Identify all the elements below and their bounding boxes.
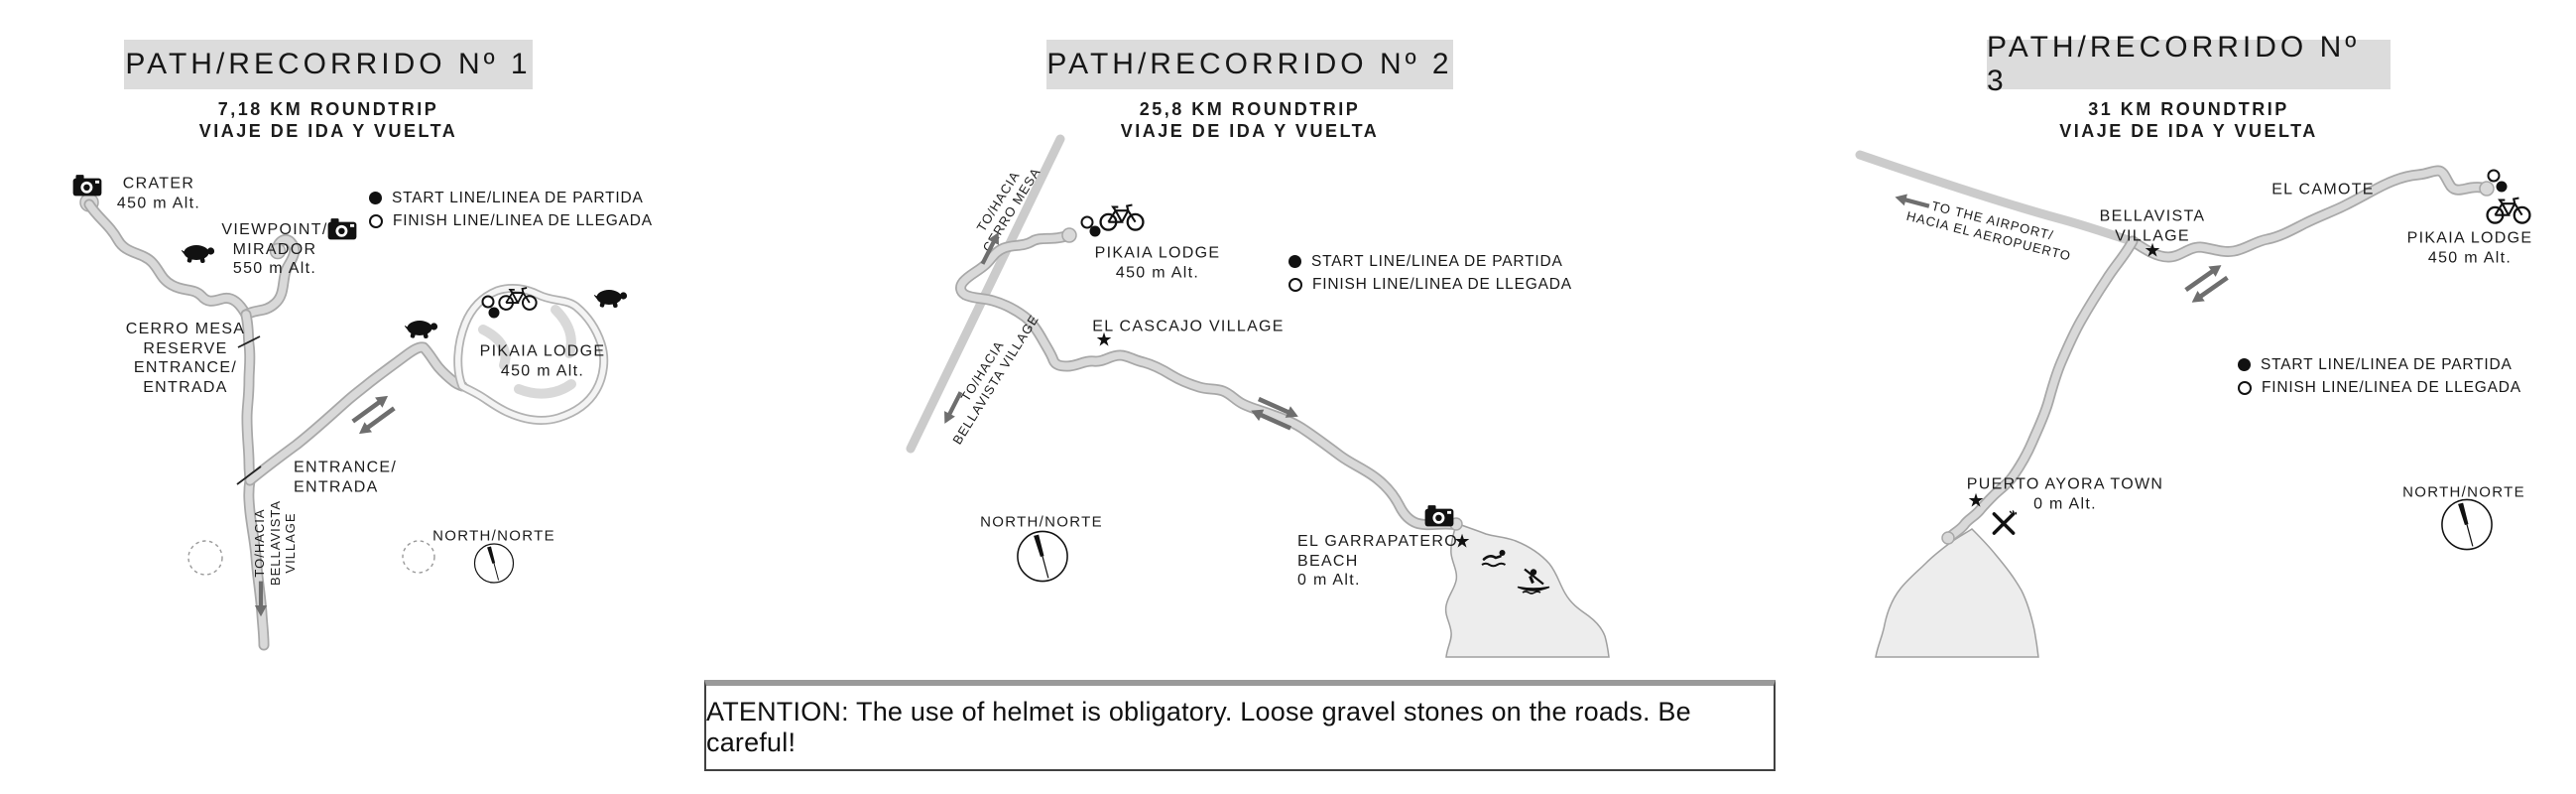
legend-start-label: START LINE/LINEA DE PARTIDA [2261,356,2513,374]
path1-subtitle: 7,18 KM ROUNDTRIP VIAJE DE IDA Y VUELTA [124,98,533,142]
path2-legend: START LINE/LINEA DE PARTIDA FINISH LINE/… [1288,250,1572,296]
path1-lodge-label: PIKAIA LODGE 450 m Alt. [480,342,606,381]
path3-roundtrip: VIAJE DE IDA Y VUELTA [1987,120,2391,142]
to-bellavista-label: TO/HACIA BELLAVISTA VILLAGE [252,500,299,586]
compass-icon [2440,498,2494,557]
attention-box: ATENTION: The use of helmet is obligator… [704,680,1776,771]
finish-dot-icon [1288,278,1302,292]
path1-title-bar: PATH/RECORRIDO Nº 1 [124,40,533,89]
legend-finish-label: FINISH LINE/LINEA DE LLEGADA [393,212,653,230]
path2-subtitle: 25,8 KM ROUNDTRIP VIAJE DE IDA Y VUELTA [1046,98,1453,142]
finish-point [2488,170,2501,183]
path3-title: PATH/RECORRIDO Nº 3 [1987,31,2391,98]
legend-start-label: START LINE/LINEA DE PARTIDA [1311,253,1563,271]
start-dot-icon [1288,255,1301,268]
kayaker-icon [1516,567,1551,602]
legend-finish-row: FINISH LINE/LINEA DE LLEGADA [369,209,653,232]
legend-finish-label: FINISH LINE/LINEA DE LLEGADA [2262,379,2521,397]
start-point [489,308,500,319]
direction-arrow-icon [254,575,269,617]
path3-title-bar: PATH/RECORRIDO Nº 3 [1987,40,2391,89]
path1-roundtrip: VIAJE DE IDA Y VUELTA [124,120,533,142]
path1-distance: 7,18 KM ROUNDTRIP [124,98,533,120]
entrance-label: ENTRANCE/ ENTRADA [294,459,397,497]
bicycle-icon [1099,202,1145,237]
path3-distance: 31 KM ROUNDTRIP [1987,98,2391,120]
legend-start-row: START LINE/LINEA DE PARTIDA [1288,250,1572,273]
camote-label: EL CAMOTE [2271,180,2375,199]
star-marker-icon: ★ [1095,331,1112,350]
garrapatero-label: EL GARRAPATERO BEACH 0 m Alt. [1297,532,1458,591]
compass-icon [473,543,515,590]
bicycle-icon [2486,196,2531,230]
finish-dot-icon [2238,381,2252,395]
path3-legend: START LINE/LINEA DE PARTIDA FINISH LINE/… [2238,353,2521,399]
path2-title-bar: PATH/RECORRIDO Nº 2 [1046,40,1453,89]
tortoise-icon [594,288,628,315]
legend-finish-row: FINISH LINE/LINEA DE LLEGADA [2238,376,2521,399]
cascajo-label: EL CASCAJO VILLAGE [1092,317,1285,336]
tortoise-icon [405,319,438,345]
path1-title: PATH/RECORRIDO Nº 1 [125,48,531,81]
legend-finish-row: FINISH LINE/LINEA DE LLEGADA [1288,273,1572,296]
viewpoint-label: VIEWPOINT/ MIRADOR 550 m Alt. [221,220,327,279]
legend-start-row: START LINE/LINEA DE PARTIDA [369,187,653,209]
path3-lodge-label: PIKAIA LODGE 450 m Alt. [2407,229,2533,268]
path1-legend: START LINE/LINEA DE PARTIDA FINISH LINE/… [369,187,653,232]
crater-label: CRATER 450 m Alt. [117,175,200,213]
legend-start-row: START LINE/LINEA DE PARTIDA [2238,353,2521,376]
camera-icon [327,217,357,245]
path2-distance: 25,8 KM ROUNDTRIP [1046,98,1453,120]
attention-text: ATENTION: The use of helmet is obligator… [706,697,1774,758]
legend-start-label: START LINE/LINEA DE PARTIDA [392,190,644,207]
camera-icon [1424,504,1454,532]
legend-finish-label: FINISH LINE/LINEA DE LLEGADA [1312,276,1572,294]
path1-roads [80,194,604,645]
compass-icon [1016,530,1069,589]
bicycle-icon [498,286,538,317]
start-point [2497,182,2508,193]
start-dot-icon [2238,358,2251,371]
path2-title: PATH/RECORRIDO Nº 2 [1046,48,1452,81]
swimmer-icon [1481,549,1511,574]
finish-dot-icon [369,214,383,228]
tortoise-icon [182,243,215,270]
path2-lodge-label: PIKAIA LODGE 450 m Alt. [1095,244,1221,283]
puerto-ayora-label: PUERTO AYORA TOWN 0 m Alt. [1967,475,2163,514]
trail-maps-infographic: PATH/RECORRIDO Nº 1 7,18 KM ROUNDTRIP VI… [0,0,2576,794]
camera-icon [72,174,102,201]
start-dot-icon [369,192,382,204]
path3-subtitle: 31 KM ROUNDTRIP VIAJE DE IDA Y VUELTA [1987,98,2391,142]
cerro-mesa-reserve-label: CERRO MESA RESERVE ENTRANCE/ ENTRADA [126,320,246,397]
star-marker-icon: ★ [1967,492,1984,511]
restaurant-icon [1991,510,2018,542]
path2-roundtrip: VIAJE DE IDA Y VUELTA [1046,120,1453,142]
star-marker-icon: ★ [2144,242,2160,261]
